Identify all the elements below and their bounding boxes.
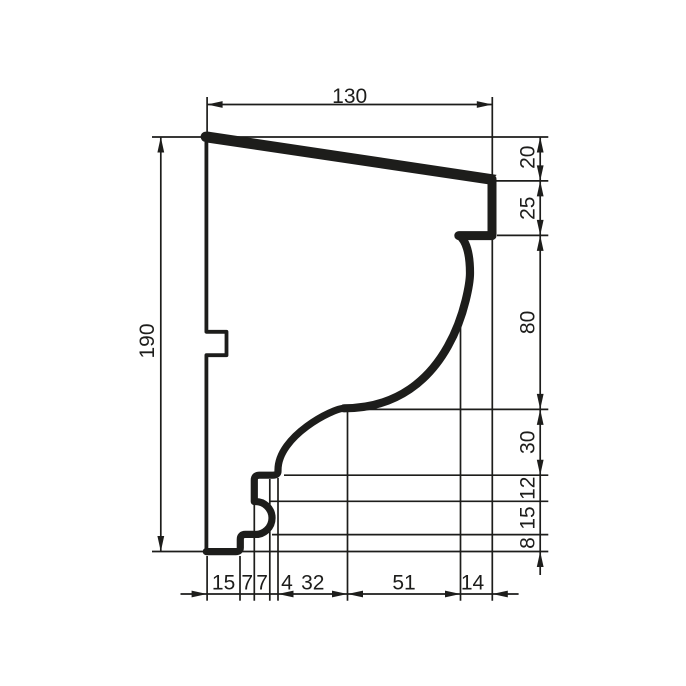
svg-text:32: 32	[301, 572, 324, 595]
svg-text:30: 30	[517, 431, 540, 454]
svg-text:8: 8	[517, 537, 540, 549]
svg-text:25: 25	[517, 197, 540, 220]
svg-text:130: 130	[332, 85, 367, 108]
svg-text:12: 12	[517, 477, 540, 500]
svg-text:80: 80	[517, 311, 540, 334]
svg-text:190: 190	[136, 323, 159, 358]
svg-text:7: 7	[241, 572, 253, 595]
svg-text:7: 7	[256, 572, 268, 595]
svg-text:14: 14	[461, 572, 485, 595]
svg-text:4: 4	[281, 572, 293, 595]
svg-text:15: 15	[517, 506, 540, 529]
svg-text:20: 20	[517, 146, 540, 169]
svg-text:51: 51	[392, 572, 415, 595]
svg-text:15: 15	[212, 572, 235, 595]
